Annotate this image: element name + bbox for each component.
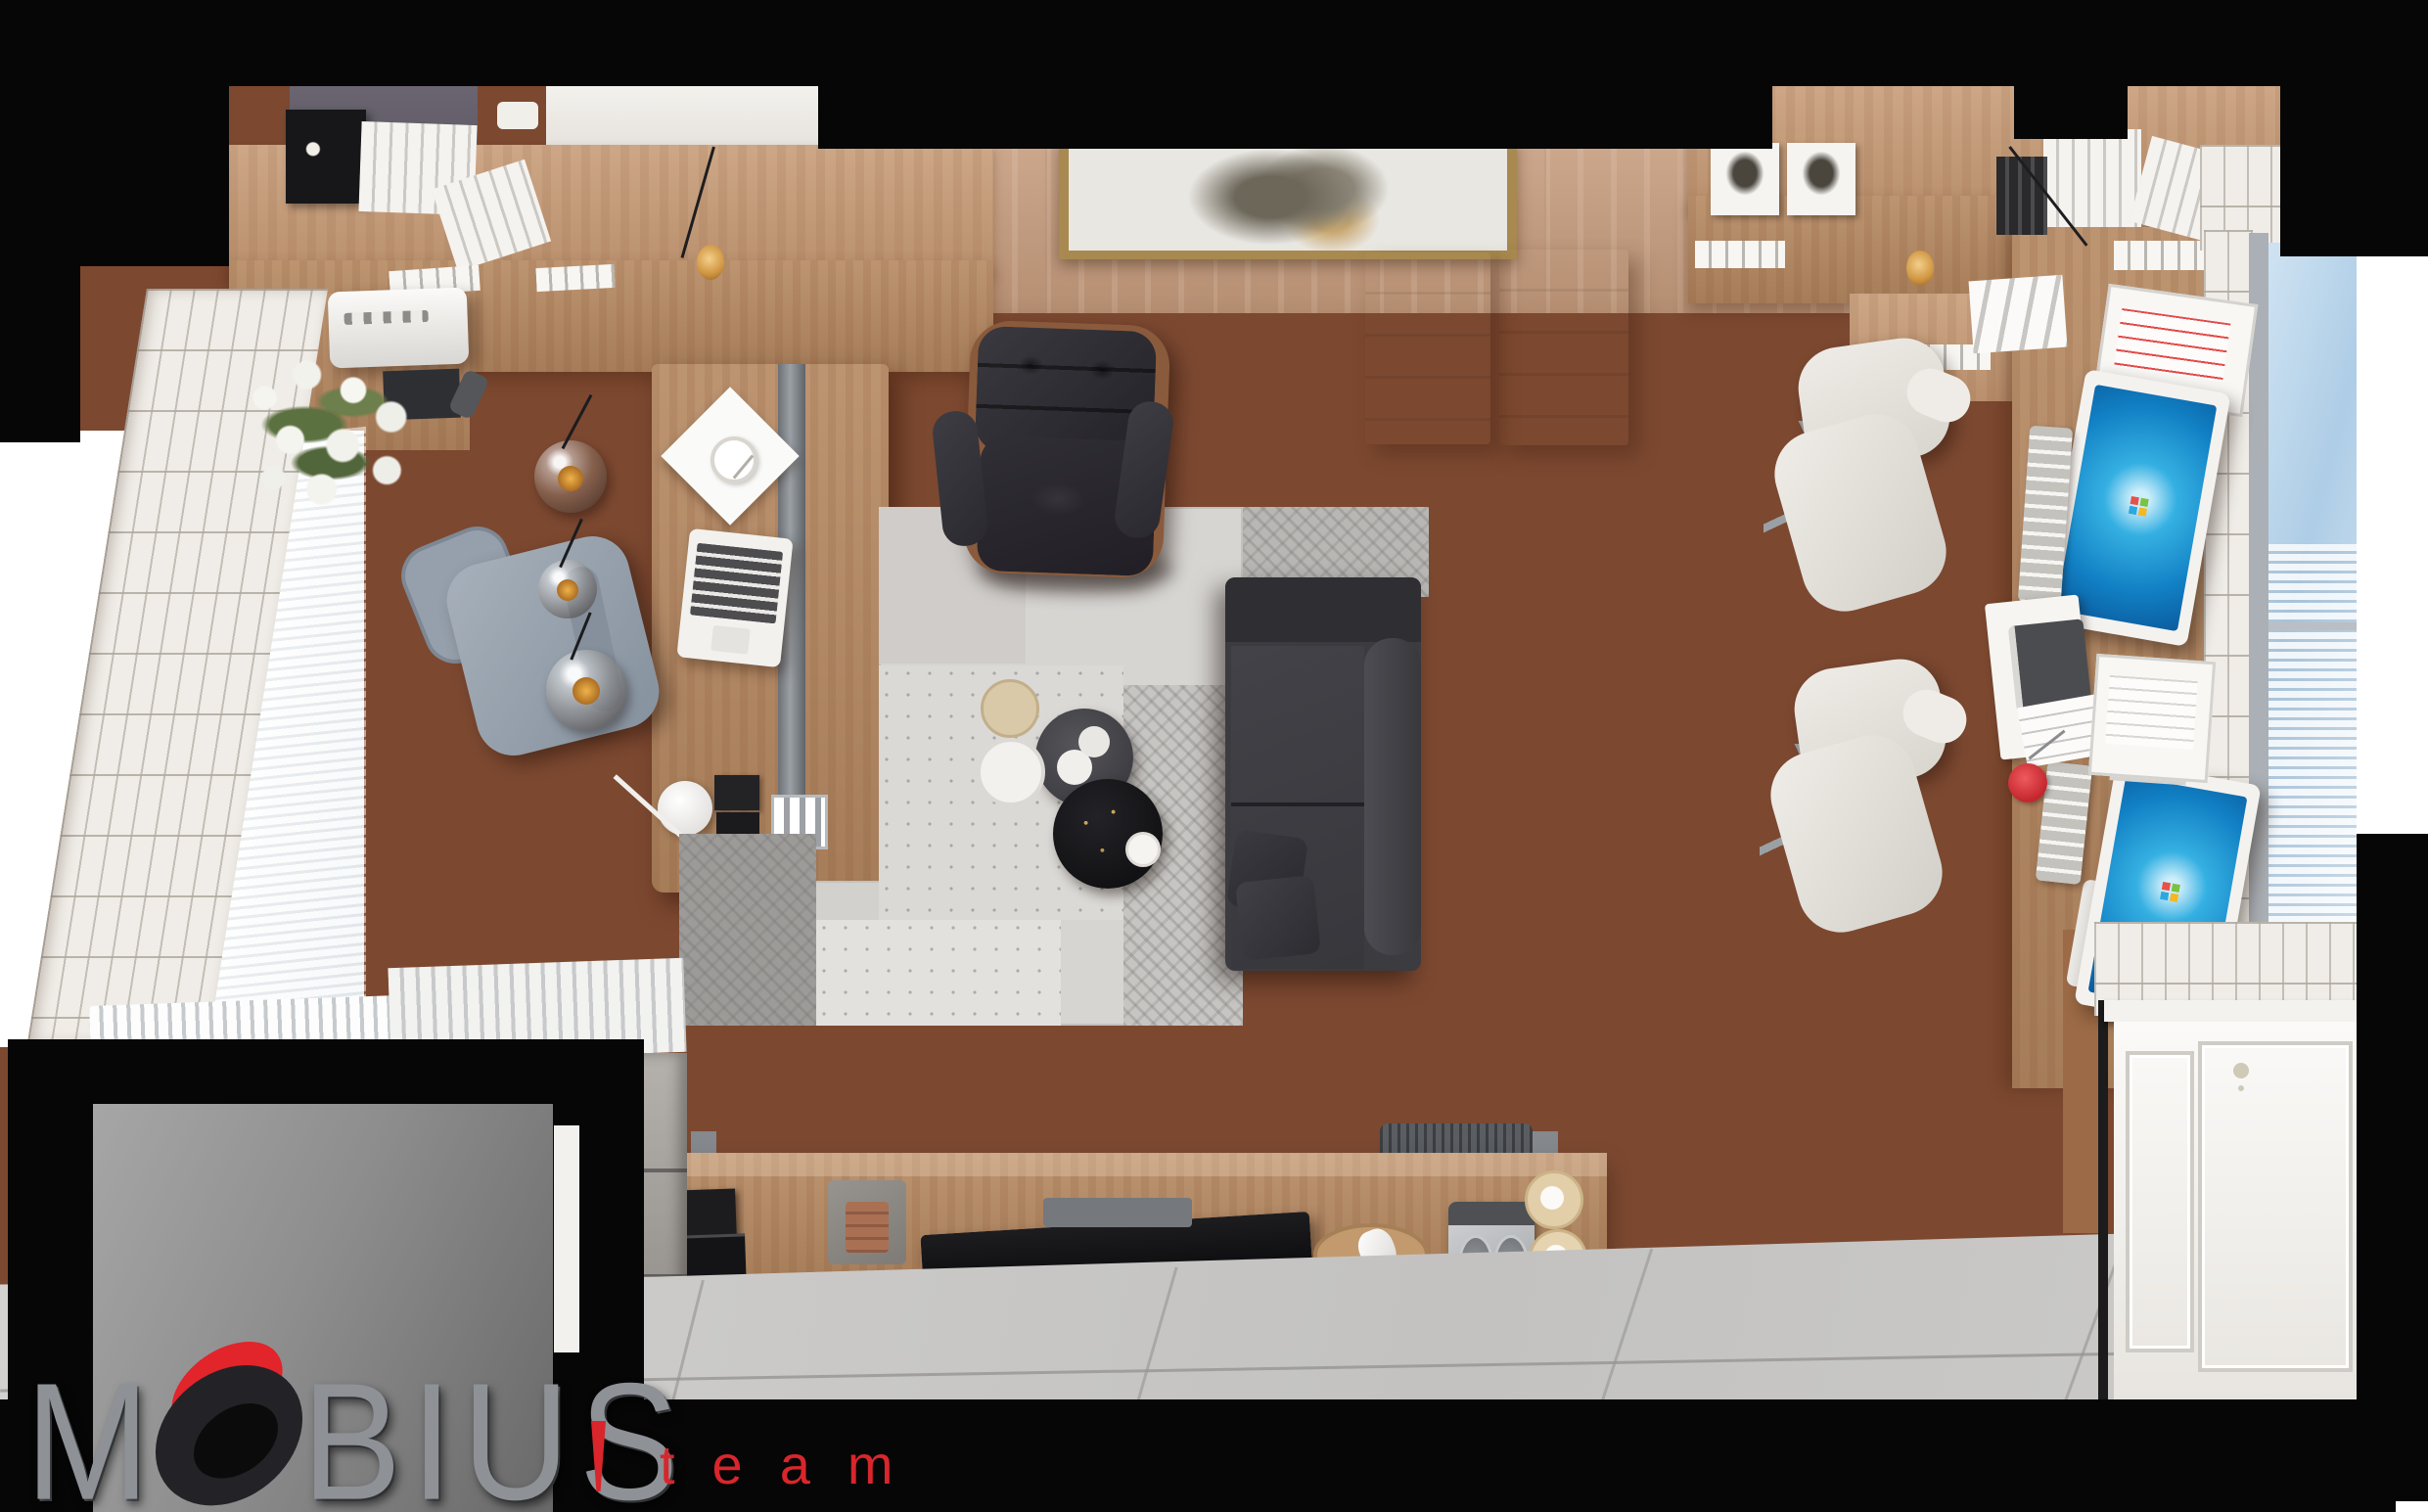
mask-top-center: [818, 0, 1772, 149]
right-window-divider: [2268, 622, 2359, 630]
file-stack-d: [2114, 241, 2212, 270]
cabinet-key: [2233, 1063, 2249, 1078]
right-window-frame: [2249, 233, 2268, 1028]
logo-letters-bius: BIUS: [302, 1347, 689, 1512]
mask-left-column: [0, 0, 80, 442]
plate-on-table-2: [1078, 726, 1110, 757]
coffee-machine-top: [1448, 1202, 1535, 1225]
sofa-seat-seam: [1231, 802, 1364, 806]
throw-pillow-2: [1235, 875, 1321, 961]
cabinet-panel-right: [2198, 1041, 2353, 1372]
tv-wall-mount: [1043, 1198, 1192, 1227]
pendant-globe-1: [534, 440, 607, 513]
cork-items: [846, 1202, 889, 1253]
printer-control-strip: [344, 310, 428, 325]
cabinet-shadow-gap: [2098, 1000, 2108, 1401]
mask-top-right: [2280, 0, 2428, 256]
corner-white-sliver: [2396, 1501, 2428, 1512]
logo-tagline: team: [660, 1433, 931, 1496]
paper-tray-lower: [2088, 654, 2216, 783]
file-stack-c: [1695, 241, 1785, 268]
small-cup: [1125, 832, 1161, 867]
white-storage-cube-left: [1365, 252, 1490, 444]
rug-patch-floral: [816, 920, 1061, 1026]
logo-letter-m: M: [25, 1347, 160, 1512]
beige-tray: [981, 679, 1039, 738]
flower-blossoms: [227, 341, 437, 531]
concrete-tray: [828, 1180, 906, 1264]
mobius-swirl-icon: [150, 1347, 316, 1511]
tree-poster-book-2: [1787, 143, 1855, 215]
red-desk-cup: [2008, 763, 2047, 802]
tree-poster-book-1: [1711, 143, 1779, 215]
console-top-edge: [665, 1153, 1607, 1176]
laptop-trackpad: [710, 625, 751, 655]
filament-1: [558, 466, 583, 491]
panel-white-sliver: [554, 1125, 579, 1352]
classic-cabinet: [2114, 1022, 2357, 1401]
cup-set-1-cup: [1540, 1186, 1564, 1210]
marble-box-1: [714, 775, 759, 810]
laptop: [676, 528, 793, 667]
cup-set-1: [1525, 1170, 1583, 1229]
tray-paper-lines-2: [2105, 675, 2198, 750]
black-poster-book: [286, 110, 366, 204]
framed-painting: [1059, 139, 1517, 259]
pendant-bulb-left: [697, 245, 724, 280]
sofa-arm-cushion: [1364, 638, 1421, 955]
tray-paper-lines: [2114, 308, 2230, 382]
dark-book-stack: [1996, 157, 2047, 235]
cabinet-panel-left: [2126, 1051, 2194, 1352]
window-overexposure: [2357, 241, 2428, 838]
pendant-globe-3: [546, 650, 626, 730]
filament-3: [573, 677, 600, 705]
white-plate: [977, 738, 1045, 806]
sofa-back: [1225, 577, 1421, 642]
rug-patch-damask: [679, 834, 816, 1026]
sorter-files: [1969, 275, 2068, 354]
laptop-keyboard: [690, 543, 783, 624]
pendant-bulb-right: [1906, 251, 1934, 286]
interior-render: M BIUS team: [0, 0, 2428, 1512]
windows-logo-2: [2162, 882, 2171, 891]
classic-cabinet-molding: [2104, 1000, 2357, 1022]
file-stack-b: [535, 264, 615, 292]
filament-2: [557, 579, 578, 601]
painting-art-horse: [1069, 148, 1507, 251]
mask-left-block: [80, 0, 229, 266]
windows-logo-1: [2130, 496, 2139, 505]
desk-lamp-base: [658, 781, 712, 836]
pendant-globe-2: [538, 560, 597, 619]
small-planter: [497, 102, 538, 129]
brand-logo: M BIUS team: [25, 1347, 906, 1508]
mask-top-notch: [2014, 0, 2128, 139]
white-storage-cube-right: [1499, 250, 1628, 445]
monitor-1-screen: [2056, 385, 2218, 631]
